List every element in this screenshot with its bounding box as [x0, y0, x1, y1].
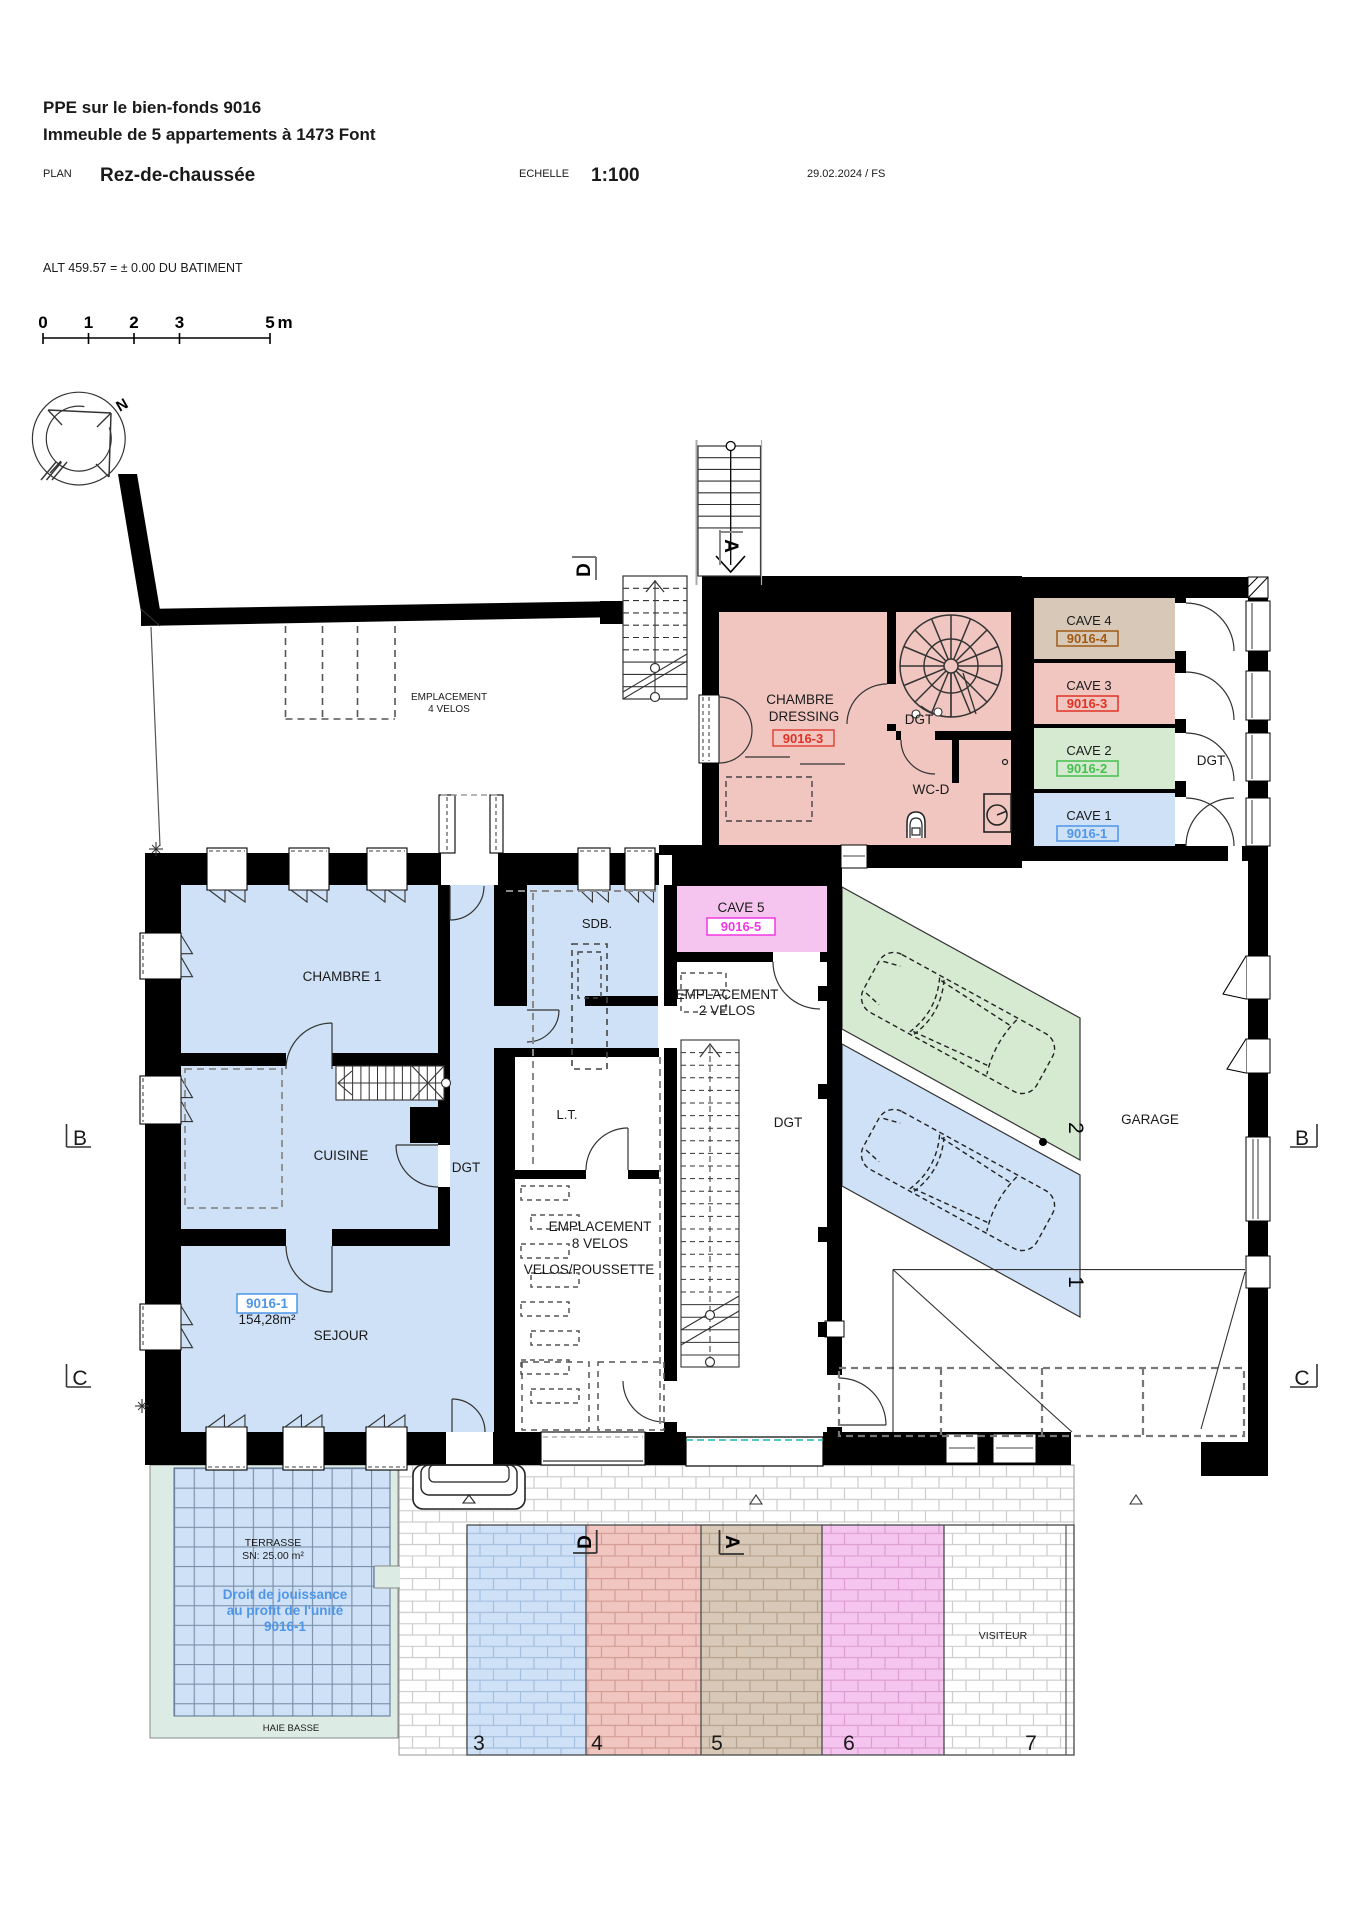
svg-text:1: 1: [84, 313, 93, 332]
svg-text:Immeuble de 5 appartements à 1: Immeuble de 5 appartements à 1473 Font: [43, 125, 376, 144]
svg-text:SN: 25.00 m²: SN: 25.00 m²: [242, 1550, 304, 1562]
svg-text:TERRASSE: TERRASSE: [245, 1537, 302, 1549]
svg-text:DGT: DGT: [905, 712, 934, 727]
svg-text:5: 5: [265, 313, 274, 332]
svg-text:3: 3: [473, 1732, 485, 1755]
svg-text:D: D: [574, 563, 595, 577]
svg-text:9016-2: 9016-2: [1067, 761, 1107, 776]
svg-text:EMPLACEMENT: EMPLACEMENT: [676, 987, 779, 1002]
svg-text:DGT: DGT: [452, 1160, 481, 1175]
svg-text:3: 3: [175, 313, 184, 332]
svg-text:EMPLACEMENT: EMPLACEMENT: [549, 1219, 652, 1234]
svg-text:8 VELOS: 8 VELOS: [572, 1236, 628, 1251]
svg-text:SDB.: SDB.: [582, 916, 612, 931]
svg-text:9016-3: 9016-3: [783, 731, 823, 746]
svg-text:CUISINE: CUISINE: [314, 1148, 369, 1163]
svg-text:9016-1: 9016-1: [1067, 826, 1107, 841]
svg-text:29.02.2024 / FS: 29.02.2024 / FS: [807, 168, 885, 180]
svg-text:m: m: [277, 313, 292, 332]
svg-text:CHAMBRE: CHAMBRE: [766, 692, 834, 707]
svg-text:7: 7: [1025, 1732, 1037, 1755]
svg-text:GARAGE: GARAGE: [1121, 1112, 1179, 1127]
svg-text:2: 2: [129, 313, 138, 332]
svg-text:CAVE 1: CAVE 1: [1066, 808, 1111, 823]
svg-text:VISITEUR: VISITEUR: [979, 1630, 1028, 1642]
svg-text:9016-3: 9016-3: [1067, 696, 1107, 711]
svg-text:au profit de l'unité: au profit de l'unité: [227, 1603, 344, 1618]
svg-text:4 VELOS: 4 VELOS: [428, 704, 470, 715]
svg-text:2: 2: [1064, 1122, 1087, 1134]
svg-text:EMPLACEMENT: EMPLACEMENT: [411, 692, 487, 703]
svg-text:SEJOUR: SEJOUR: [314, 1328, 369, 1343]
svg-text:DGT: DGT: [1197, 753, 1226, 768]
svg-text:B: B: [1295, 1127, 1309, 1150]
svg-text:A: A: [721, 1535, 742, 1549]
svg-text:PPE sur le bien-fonds 9016: PPE sur le bien-fonds 9016: [43, 98, 261, 117]
svg-text:WC-D: WC-D: [913, 782, 950, 797]
svg-text:D: D: [575, 1535, 596, 1549]
svg-text:HAIE BASSE: HAIE BASSE: [263, 1723, 320, 1734]
svg-text:VELOS/POUSSETTE: VELOS/POUSSETTE: [524, 1262, 655, 1277]
svg-text:PLAN: PLAN: [43, 168, 72, 180]
svg-text:5: 5: [711, 1732, 723, 1755]
svg-text:ALT 459.57 = ± 0.00 DU BATIMEN: ALT 459.57 = ± 0.00 DU BATIMENT: [43, 261, 243, 275]
svg-text:DGT: DGT: [774, 1115, 803, 1130]
svg-text:Droit de jouissance: Droit de jouissance: [223, 1587, 348, 1602]
svg-text:6: 6: [843, 1732, 855, 1755]
svg-text:C: C: [72, 1367, 87, 1390]
svg-text:CHAMBRE 1: CHAMBRE 1: [303, 969, 382, 984]
svg-text:L.T.: L.T.: [557, 1107, 578, 1122]
svg-text:CAVE 3: CAVE 3: [1066, 678, 1111, 693]
svg-text:154,28m²: 154,28m²: [238, 1312, 296, 1327]
svg-text:9016-4: 9016-4: [1067, 631, 1108, 646]
svg-text:Rez-de-chaussée: Rez-de-chaussée: [100, 165, 255, 186]
svg-text:1: 1: [1064, 1276, 1087, 1288]
svg-text:1:100: 1:100: [591, 165, 640, 186]
svg-text:CAVE 5: CAVE 5: [717, 900, 764, 915]
svg-text:DRESSING: DRESSING: [769, 709, 840, 724]
svg-text:0: 0: [38, 313, 47, 332]
svg-text:9016-1: 9016-1: [246, 1296, 289, 1311]
svg-text:CAVE 4: CAVE 4: [1066, 613, 1111, 628]
svg-text:C: C: [1294, 1367, 1309, 1390]
svg-text:A: A: [720, 539, 741, 553]
svg-text:B: B: [73, 1127, 87, 1150]
svg-text:2 VELOS: 2 VELOS: [699, 1003, 755, 1018]
svg-text:9016-5: 9016-5: [721, 919, 761, 934]
svg-text:ECHELLE: ECHELLE: [519, 168, 569, 180]
svg-text:CAVE 2: CAVE 2: [1066, 743, 1111, 758]
svg-text:9016-1: 9016-1: [264, 1619, 307, 1634]
svg-text:4: 4: [591, 1732, 603, 1755]
